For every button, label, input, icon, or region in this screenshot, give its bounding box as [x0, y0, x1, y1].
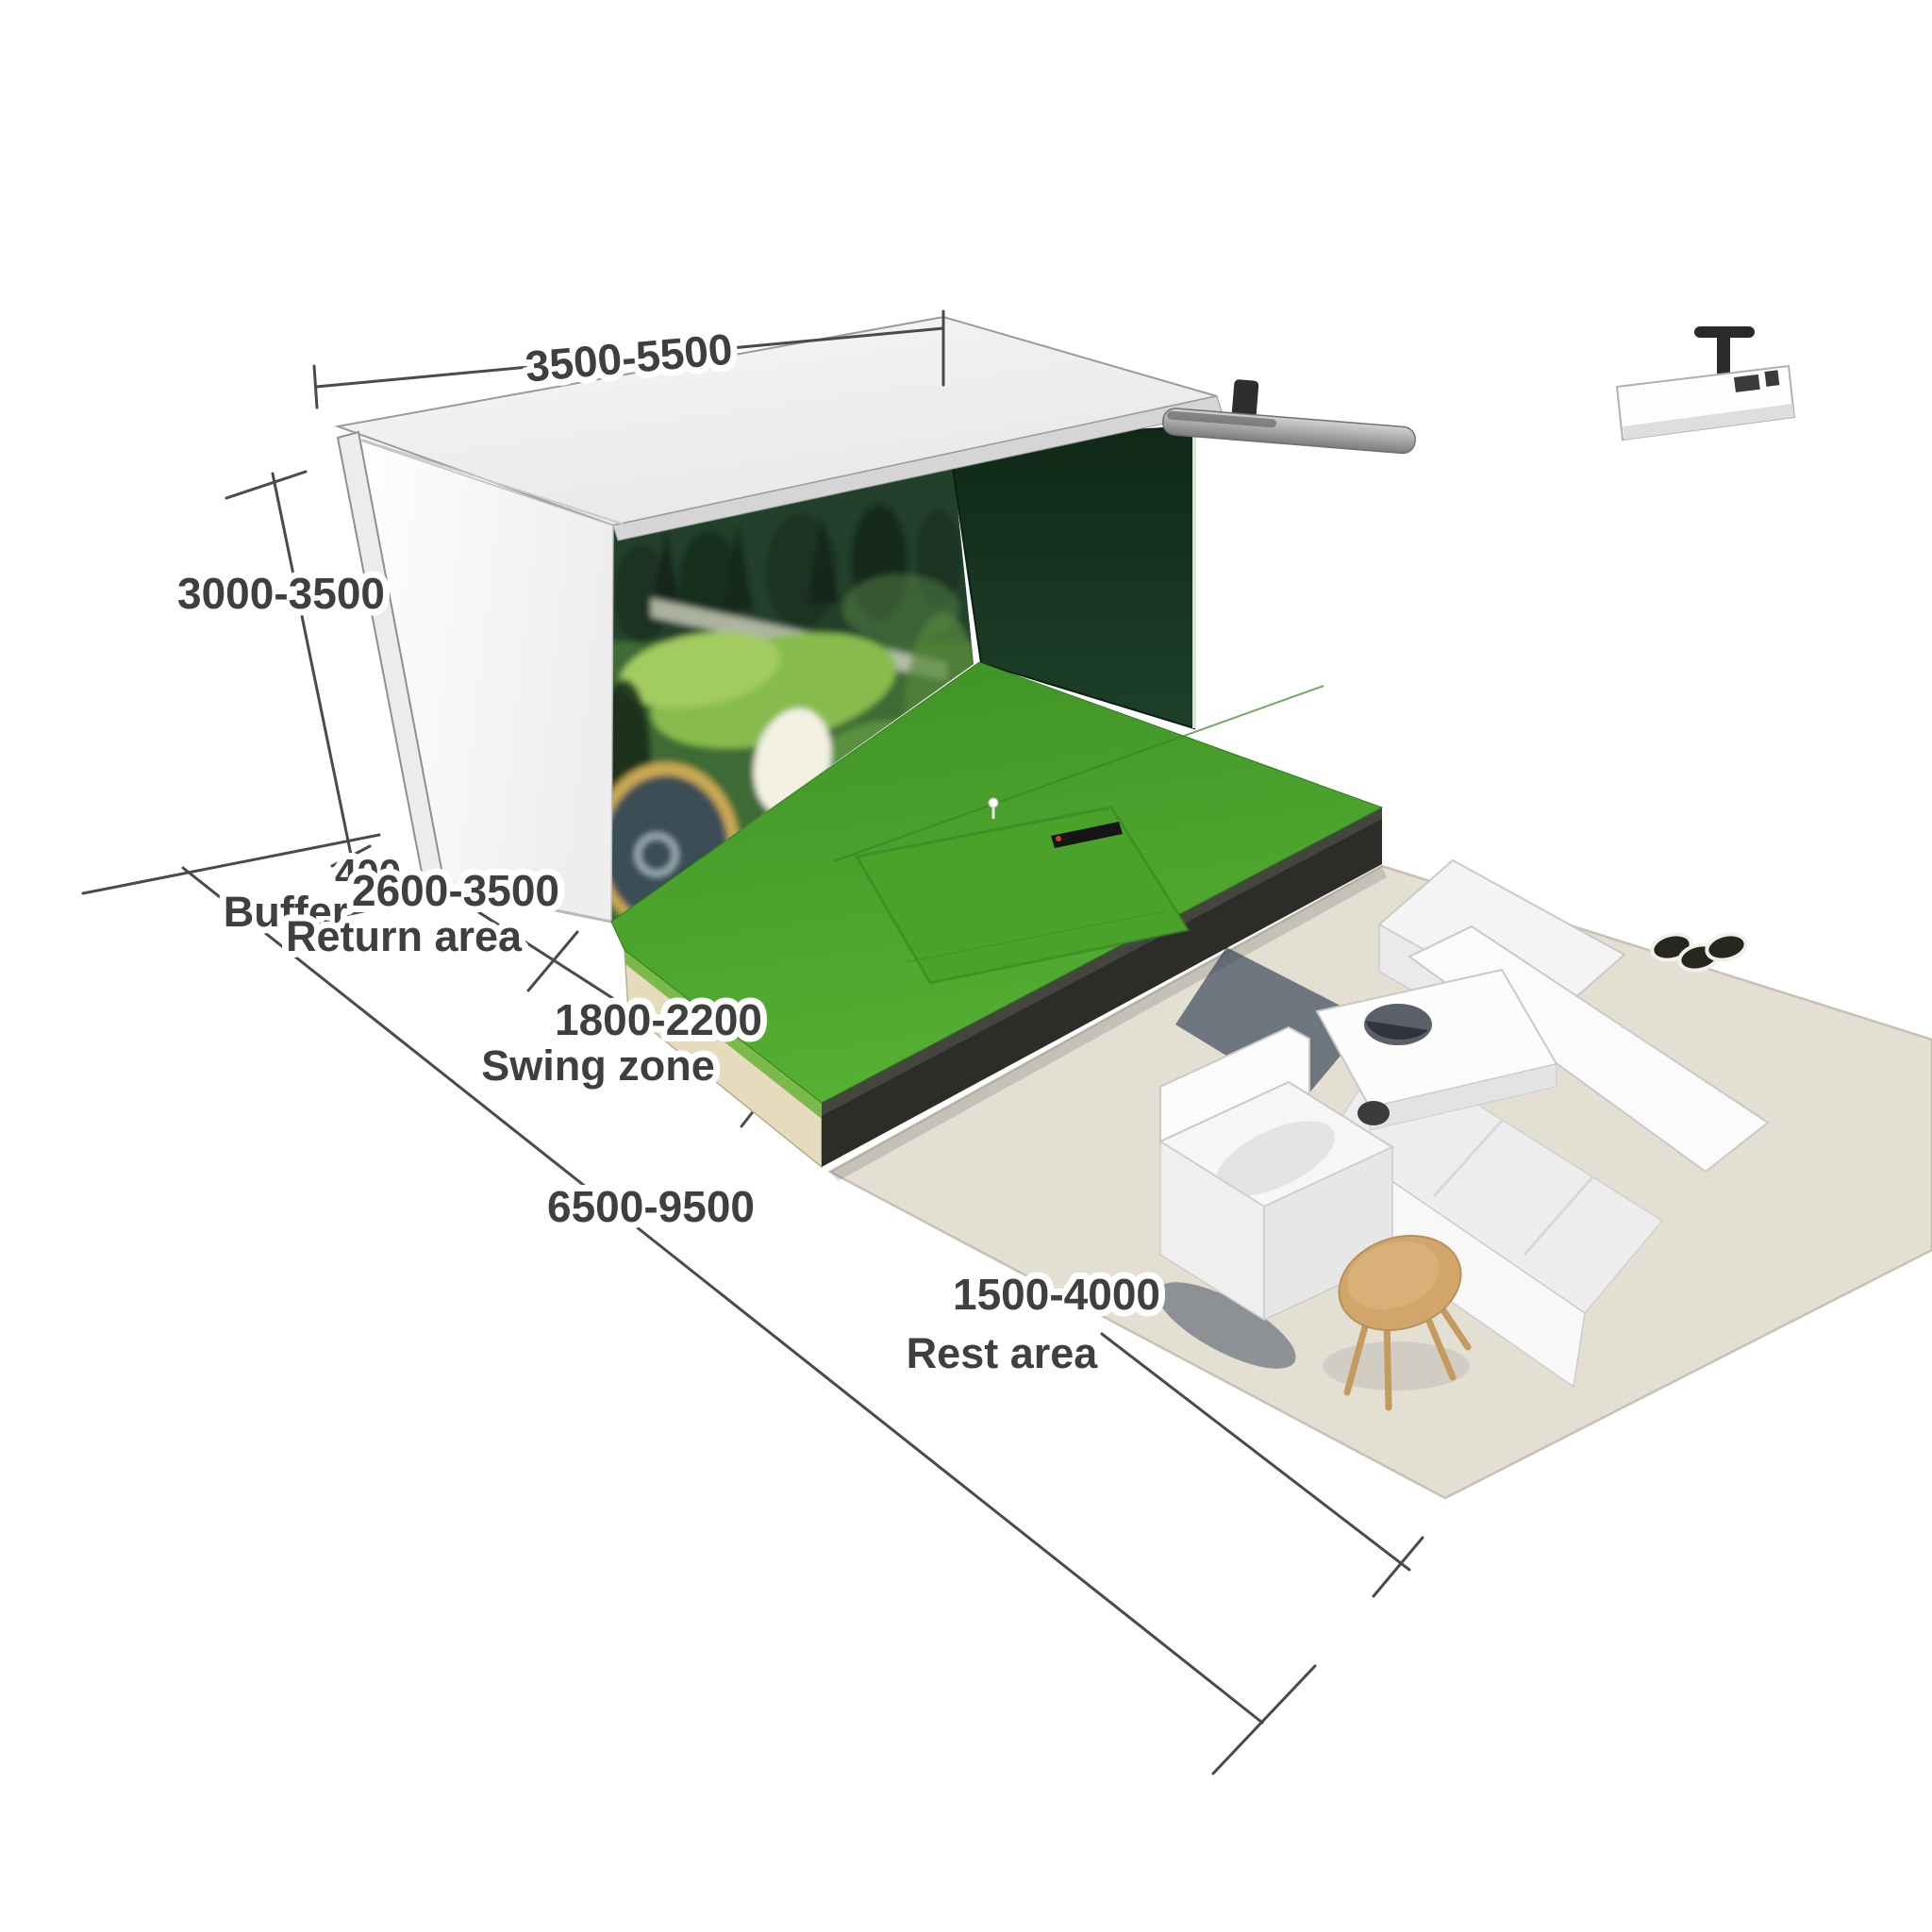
height-dim-top-tick [226, 472, 306, 498]
diagram-canvas: 3500-5500 3000-3500 400 Buffer 2600-3500… [0, 0, 1932, 1932]
height-dim-line [273, 474, 351, 855]
return-area-label: Return area [286, 912, 523, 960]
ceiling-projector [1617, 326, 1794, 440]
screen-roller-bar [1162, 374, 1419, 454]
return-area-depth-label: 2600-3500 [352, 866, 559, 915]
total-depth-end-tick [1213, 1666, 1315, 1774]
golf-simulator-dimension-diagram: 3500-5500 3000-3500 400 Buffer 2600-3500… [0, 0, 1932, 1932]
projector-mount-pole [1717, 334, 1730, 374]
return-area-tick [528, 932, 577, 991]
rest-area-depth-label: 1500-4000 [953, 1270, 1160, 1319]
launch-monitor-led [1056, 836, 1061, 841]
enclosure-height-label: 3000-3500 [177, 569, 385, 618]
small-pot [1357, 1101, 1390, 1125]
width-dim-left-tick [314, 366, 317, 408]
total-depth-label: 6500-9500 [547, 1182, 755, 1231]
golf-ball [989, 798, 998, 808]
swing-zone-label: Swing zone [481, 1041, 715, 1090]
rest-area-label: Rest area [907, 1329, 1099, 1377]
swing-zone-depth-label: 1800-2200 [555, 995, 762, 1044]
